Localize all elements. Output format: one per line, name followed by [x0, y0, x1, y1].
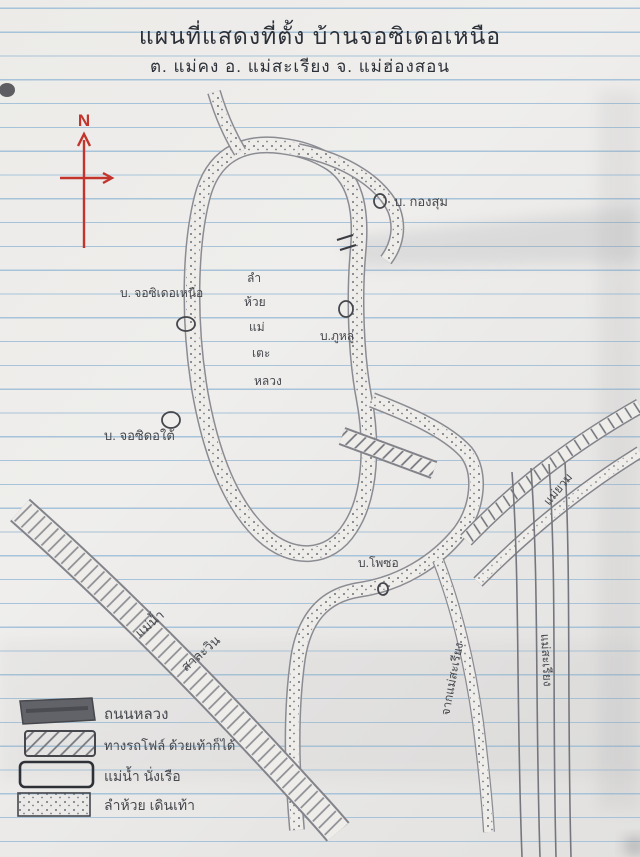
stream-word: ห้วย: [244, 295, 266, 309]
notebook-paper-map: แผนที่แสดงที่ตั้ง บ้านจอซิเดอเหนือ ต. แม…: [0, 0, 640, 857]
edge-smudge: [0, 83, 15, 97]
stream-word: ลำ: [247, 271, 261, 285]
stream-word: เตะ: [252, 346, 270, 360]
legend-row-stream-footpath: ลำห้วย เดินเท้า: [18, 793, 195, 816]
top-exit-band: [214, 92, 240, 152]
legend-label-highway: ถนนหลวง: [104, 706, 168, 723]
legend-label-stream-footpath: ลำห้วย เดินเท้า: [104, 797, 195, 813]
map-subtitle: ต. แม่คง อ. แม่สะเรียง จ. แม่ฮ่องสอน: [150, 57, 450, 76]
legend-swatch-dotted: [18, 793, 90, 816]
ring-trail-band: [192, 145, 369, 554]
compass-north-label: N: [78, 111, 90, 130]
stream-word: หลวง: [254, 374, 282, 388]
map-title: แผนที่แสดงที่ตั้ง บ้านจอซิเดอเหนือ: [139, 20, 501, 49]
label-jo-si-do-tai: บ. จอซิดอใต้: [104, 428, 175, 443]
legend-swatch-hatched: [25, 731, 95, 756]
stream-word: แม่: [249, 320, 265, 334]
legend-label-vehicle-track: ทางรถโฟล์ ด้วยเท้าก็ได้: [104, 736, 235, 753]
mid-hatched-band: [342, 436, 434, 470]
label-mae-sariang: แม่สะเรียง: [538, 633, 555, 687]
village-circle-jo-si-do-tai: [162, 412, 180, 428]
label-phu-lu: บ.ภูหลู่: [320, 329, 354, 344]
hand-drawn-map-canvas: แผนที่แสดงที่ตั้ง บ้านจอซิเดอเหนือ ต. แม…: [0, 0, 640, 857]
label-jo-si-doe-nuea: บ. จอซิเดอเหนือ: [120, 286, 203, 300]
label-pho-so: บ.โพซอ: [358, 556, 399, 570]
label-stream-stack: ลำ ห้วย แม่ เตะ หลวง: [244, 271, 282, 388]
label-kong-sum: บ. กองสุม: [394, 194, 448, 210]
corner-smudge: [624, 837, 640, 855]
legend-label-river: แม่น้ำ นั่งเรือ: [104, 766, 181, 784]
compass-rose: [60, 134, 112, 248]
